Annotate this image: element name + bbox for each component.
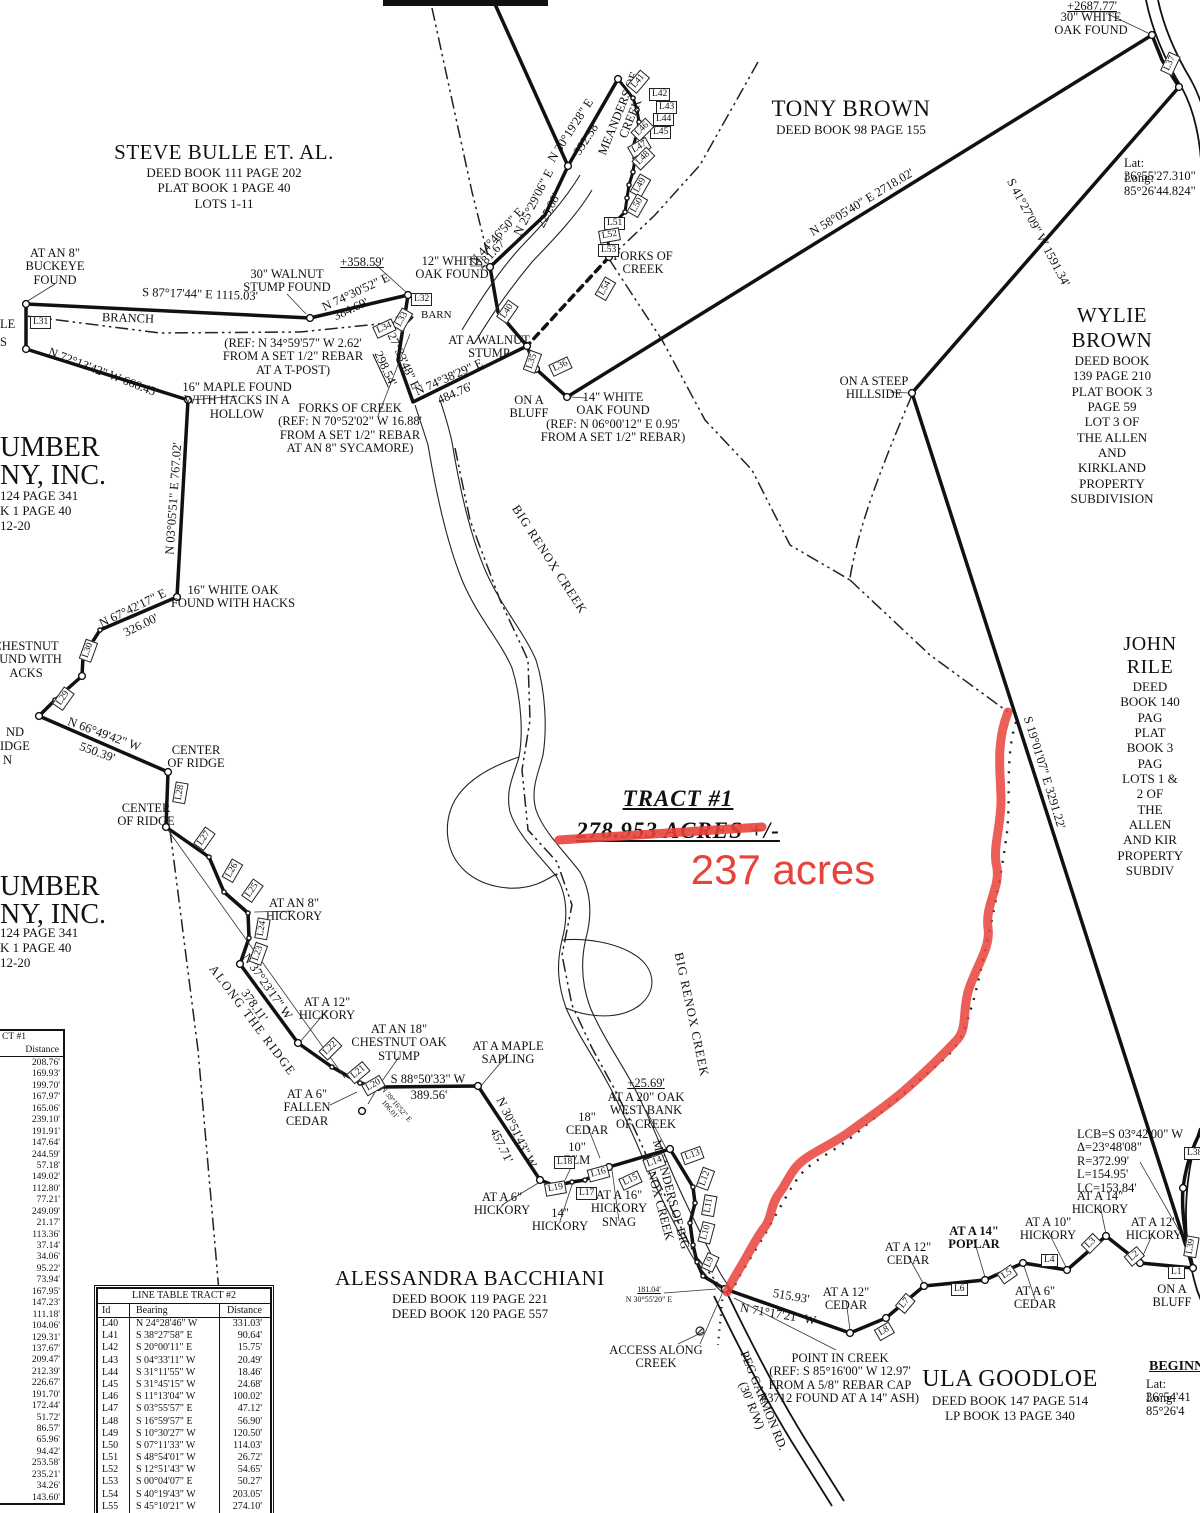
tract1-distance-value: 34.06' — [0, 1251, 63, 1262]
map-label: ON A BLUFF — [1153, 1283, 1192, 1310]
tract2-row-l55: L55S 45°10'21" W274.10' — [98, 1501, 270, 1513]
tract1-distance-value: 165.06' — [0, 1103, 63, 1114]
tract2-distance: 331.03' — [220, 1318, 266, 1330]
map-label: AT AN 18" CHESTNUT OAK STUMP — [351, 1023, 446, 1063]
line-label-l7: L7 — [895, 1293, 916, 1314]
line-label-l27: L27 — [193, 826, 216, 851]
map-label: N 39°16'52" E 106.01' — [373, 1085, 413, 1129]
tract2-header-id: Id — [98, 1304, 130, 1317]
map-label: N — [3, 754, 12, 767]
owner-deed-line: DEED BOOK 139 PAGE 210 — [1068, 353, 1156, 384]
owner-block-steve-bulle-et-al-: STEVE BULLE ET. AL.DEED BOOK 111 PAGE 20… — [114, 140, 334, 211]
survey-point — [537, 1177, 544, 1184]
map-label: AT A 12" CEDAR — [885, 1241, 932, 1268]
line-label-l8: L8 — [874, 1322, 895, 1342]
dotted-tie-line — [718, 1292, 723, 1345]
line-label-l40: L40 — [496, 299, 519, 324]
tract-acres-original: 278.953 ACRES +/- — [576, 818, 780, 844]
line-label-l9: L9 — [701, 1252, 720, 1273]
line-label-l50: L50 — [627, 193, 649, 218]
tract2-bearing: S 48°54'01" W — [130, 1452, 220, 1464]
map-label: AT A 6" HICKORY — [474, 1191, 530, 1218]
owner-deed-line: DEED BOOK 98 PAGE 155 — [772, 122, 931, 137]
line-label-l13: L13 — [680, 1146, 705, 1166]
line-label-l29: L29 — [52, 686, 75, 711]
map-label: FORKS OF CREEK (REF: N 70°52'02" W 16.88… — [278, 402, 422, 456]
line-table-tract1-rows: 208.76'169.93'199.70'167.97'165.06'239.1… — [0, 1057, 63, 1503]
tract1-distance-value: 104.06' — [0, 1320, 63, 1331]
line-label-l1: L1 — [1168, 1266, 1185, 1279]
map-label: AT A 6" CEDAR — [1014, 1285, 1056, 1312]
meander-point — [583, 1178, 587, 1182]
map-label: AT A 10" HICKORY — [1020, 1216, 1076, 1243]
tract1-distance-value: 73.94' — [0, 1274, 63, 1285]
survey-point — [1020, 1260, 1027, 1267]
owner-deed-line: LOT 3 OF — [1068, 414, 1156, 429]
map-label: AT AN 8" HICKORY — [266, 897, 322, 924]
tract1-distance-value: 137.67' — [0, 1343, 63, 1354]
tract2-header-bearing: Bearing — [130, 1304, 220, 1317]
tract2-id: L44 — [98, 1367, 130, 1379]
map-label: ACCESS ALONG CREEK — [609, 1344, 702, 1371]
meander-point — [625, 196, 629, 200]
map-label: 16" WHITE OAK FOUND WITH HACKS — [171, 584, 295, 611]
tract2-id: L53 — [98, 1476, 130, 1488]
tract2-bearing: S 40°19'43" W — [130, 1489, 220, 1501]
meander-point — [247, 936, 251, 940]
owner-deed-line: DEED BOOK 140 PAG — [1117, 679, 1182, 725]
line-label-l10: L10 — [697, 1221, 715, 1245]
tract2-bearing: S 10°30'27" W — [130, 1428, 220, 1440]
survey-point — [909, 390, 916, 397]
map-label: K 1 PAGE 40 — [0, 504, 71, 518]
tract1-distance-value: 226.67' — [0, 1377, 63, 1388]
line-label-l30: L30 — [79, 638, 99, 663]
tract2-row-l47: L47S 03°55'57" E47.12' — [98, 1403, 270, 1415]
tract2-row-l52: L52S 12°51'43" W54.65' — [98, 1464, 270, 1476]
line-label-l17: L17 — [576, 1187, 597, 1200]
owner-block-wylie-brown: WYLIE BROWNDEED BOOK 139 PAGE 210PLAT BO… — [1068, 303, 1156, 506]
line-label-l4: L4 — [1041, 1254, 1058, 1267]
tract2-id: L51 — [98, 1452, 130, 1464]
tract2-id: L47 — [98, 1403, 130, 1415]
line-table-tract2-title: LINE TABLE TRACT #2 — [98, 1289, 270, 1304]
leader-lines — [26, 14, 1180, 1350]
tract2-bearing: S 03°55'57" E — [130, 1403, 220, 1415]
owner-deed-line: DEED BOOK 147 PAGE 514 — [922, 1393, 1097, 1408]
survey-point — [667, 1146, 674, 1153]
tract1-distance-value: 209.47' — [0, 1354, 63, 1365]
map-label: AT A 12" HICKORY — [1126, 1216, 1182, 1243]
map-label: POINT IN CREEK (REF: S 85°16'00" W 12.97… — [761, 1352, 919, 1406]
line-label-l54: L54 — [595, 276, 617, 301]
line-label-l38: L38 — [1184, 1147, 1200, 1160]
owner-deed-line: LOTS 1 & 2 OF — [1117, 771, 1182, 802]
line-label-l6: L6 — [951, 1283, 968, 1296]
tract2-distance: 20.49' — [220, 1355, 266, 1367]
tract1-distance-value: 34.26' — [0, 1480, 63, 1491]
tract1-distance-value: 65.96' — [0, 1434, 63, 1445]
tract1-distance-value: 253.58' — [0, 1457, 63, 1468]
tract1-distance-value: 37.14' — [0, 1240, 63, 1251]
map-label: 389.56' — [411, 1089, 448, 1102]
map-label: ON A STEEP HILLSIDE — [840, 375, 909, 402]
owner-deed-line: LOTS 1-11 — [114, 196, 334, 211]
owner-deed-line: PROPERTY SUBDIVISION — [1068, 476, 1156, 507]
tract2-distance: 90.64' — [220, 1330, 266, 1342]
map-label: AT A 12" HICKORY — [299, 996, 355, 1023]
tract2-bearing: S 31°11'55" W — [130, 1367, 220, 1379]
owner-deed-line: PROPERTY SUBDIV — [1117, 848, 1182, 879]
map-label: 30" WALNUT STUMP FOUND — [243, 268, 330, 295]
survey-point — [1149, 32, 1156, 39]
map-label: ND — [6, 726, 24, 739]
map-label: 18" CEDAR — [566, 1111, 608, 1138]
tract2-id: L54 — [98, 1489, 130, 1501]
survey-point — [1176, 84, 1183, 91]
line-label-l24: L24 — [254, 917, 271, 940]
tract2-distance: 114.03' — [220, 1440, 266, 1452]
tract2-id: L52 — [98, 1464, 130, 1476]
map-label: +358.59' — [340, 256, 384, 269]
tract1-distance-value: 77.21' — [0, 1194, 63, 1205]
survey-point — [565, 163, 572, 170]
tract1-distance-value: 51.72' — [0, 1412, 63, 1423]
tract2-row-l43: L43S 04°33'11" W20.49' — [98, 1355, 270, 1367]
line-label-l25: L25 — [241, 878, 264, 903]
tract2-id: L45 — [98, 1379, 130, 1391]
survey-point — [359, 1108, 366, 1115]
line-label-l44: L44 — [653, 113, 674, 126]
map-label: (REF: N 34°59'57" W 2.62' FROM A SET 1/2… — [223, 337, 363, 377]
tract1-distance-value: 167.95' — [0, 1286, 63, 1297]
survey-point — [847, 1330, 854, 1337]
tract1-distance-value: 239.10' — [0, 1114, 63, 1125]
tract2-bearing: S 11°13'04" W — [130, 1391, 220, 1403]
map-label: 124 PAGE 341 — [0, 489, 78, 503]
tract2-distance: 15.75' — [220, 1342, 266, 1354]
line-table-tract2: LINE TABLE TRACT #2 IdBearingDistance L4… — [96, 1287, 272, 1513]
tract2-row-l40: L40N 24°28'46" W331.03' — [98, 1318, 270, 1330]
owner-name: TONY BROWN — [772, 96, 931, 122]
line-table-tract1: CT #1 Distance 208.76'169.93'199.70'167.… — [0, 1029, 65, 1505]
owner-block-alessandra-bacchiani: ALESSANDRA BACCHIANIDEED BOOK 119 PAGE 2… — [335, 1266, 605, 1322]
map-label: AT A 12" CEDAR — [823, 1286, 870, 1313]
meander-point — [693, 1201, 697, 1205]
survey-point — [921, 1283, 928, 1290]
tract1-distance-value: 129.31' — [0, 1332, 63, 1343]
map-label: AT A 6" FALLEN CEDAR — [284, 1088, 331, 1128]
map-label: NY, INC. — [0, 461, 106, 491]
map-label: S — [0, 336, 7, 349]
tract2-id: L43 — [98, 1355, 130, 1367]
map-label: S 88°50'33" W — [391, 1073, 466, 1086]
meander-point — [701, 1274, 705, 1278]
map-label: +25.69' — [627, 1077, 664, 1090]
map-label: AT A 16" HICKORY SNAG — [591, 1189, 647, 1229]
tract1-distance-value: 57.18' — [0, 1160, 63, 1171]
line-label-l52: L52 — [598, 227, 621, 244]
utility-symbol — [696, 1327, 704, 1335]
tract1-distance-value: 199.70' — [0, 1080, 63, 1091]
meander-point — [222, 890, 226, 894]
line-label-l37: L37 — [1160, 51, 1181, 76]
tract1-distance-value: 169.93' — [0, 1068, 63, 1079]
line-table-tract1-title: CT #1 — [0, 1031, 63, 1043]
tract1-distance-value: 172.44' — [0, 1400, 63, 1411]
tract2-row-l45: L45S 31°45'15" W24.68' — [98, 1379, 270, 1391]
tract1-distance-value: 167.97' — [0, 1091, 63, 1102]
tract2-id: L40 — [98, 1318, 130, 1330]
tract2-id: L42 — [98, 1342, 130, 1354]
map-label: UMBER — [0, 433, 100, 463]
survey-plat-map: TRACT #1 278.953 ACRES +/- 237 acres CT … — [0, 0, 1200, 1513]
tract2-bearing: S 00°04'07" E — [130, 1476, 220, 1488]
map-label: N 72°13'42" W 666.45' — [46, 346, 159, 400]
tract1-distance-value: 249.09' — [0, 1206, 63, 1217]
owner-deed-line: THE ALLEN AND KIR — [1117, 802, 1182, 848]
tract1-distance-value: 112.80' — [0, 1183, 63, 1194]
tract2-row-l51: L51S 48°54'01" W26.72' — [98, 1452, 270, 1464]
map-label: 515.93' — [772, 1287, 810, 1307]
meander-point — [207, 855, 211, 859]
tract2-distance: 203.05' — [220, 1489, 266, 1501]
map-label: AT A 14" POPLAR — [948, 1225, 999, 1252]
red-boundary-highlight — [727, 712, 1008, 1292]
map-label: 16" MAPLE FOUND WITH HACKS IN A HOLLOW — [182, 381, 291, 421]
tract2-distance: 26.72' — [220, 1452, 266, 1464]
map-label: FORKS OF CREEK — [613, 250, 672, 277]
line-label-l22: L22 — [318, 1036, 343, 1061]
owner-deed-line: LP BOOK 13 PAGE 340 — [922, 1408, 1097, 1423]
tract2-distance: 54.65' — [220, 1464, 266, 1476]
map-label: UMBER — [0, 872, 100, 902]
tract-title: TRACT #1 — [623, 786, 734, 812]
line-label-l5: L5 — [997, 1264, 1018, 1284]
meander-point — [631, 170, 635, 174]
map-label: IDGE — [0, 740, 30, 753]
dotted-creek-boundary — [733, 722, 1016, 1290]
survey-point — [307, 315, 314, 322]
map-label: CENTER OF RIDGE — [117, 802, 174, 829]
meander-point — [691, 1185, 695, 1189]
tract2-bearing: S 04°33'11" W — [130, 1355, 220, 1367]
map-label: BARN — [421, 310, 452, 322]
owner-block-ula-goodloe: ULA GOODLOEDEED BOOK 147 PAGE 514LP BOOK… — [922, 1366, 1097, 1424]
tract1-distance-value: 94.42' — [0, 1446, 63, 1457]
line-label-l28: L28 — [172, 781, 189, 804]
line-label-l12: L12 — [696, 1166, 716, 1191]
map-label: S 87°17'44" E 1115.03' — [142, 286, 258, 303]
owner-deed-line: THE ALLEN AND KIRKLAND — [1068, 430, 1156, 476]
map-label: 181.04' — [637, 1286, 660, 1295]
line-label-l39: L39 — [1183, 1235, 1200, 1258]
owner-deed-line: PLAT BOOK 3 PAGE 59 — [1068, 384, 1156, 415]
line-label-l11: L11 — [701, 1194, 718, 1217]
survey-point — [295, 1040, 302, 1047]
tract2-bearing: S 45°10'21" W — [130, 1501, 220, 1513]
tract1-distance-value: 86.57' — [0, 1423, 63, 1434]
tract1-distance-value: 149.02' — [0, 1171, 63, 1182]
tract2-bearing: S 07°11'33" W — [130, 1440, 220, 1452]
owner-block-john-rile: JOHN RILEDEED BOOK 140 PAGPLAT BOOK 3 PA… — [1117, 633, 1182, 878]
owner-deed-line: DEED BOOK 120 PAGE 557 — [335, 1306, 605, 1321]
map-label: 14" WHITE OAK FOUND (REF: N 06°00'12" E … — [541, 391, 686, 445]
survey-point — [23, 346, 30, 353]
line-label-l42: L42 — [649, 88, 670, 101]
tract1-distance-value: 191.70' — [0, 1389, 63, 1400]
tract2-row-l46: L46S 11°13'04" W100.02' — [98, 1391, 270, 1403]
meander-point — [695, 1260, 699, 1264]
tract1-distance-value: 147.64' — [0, 1137, 63, 1148]
tract2-row-l48: L48S 16°59'57" E56.90' — [98, 1416, 270, 1428]
tract2-bearing: S 38°27'58" E — [130, 1330, 220, 1342]
line-label-l3: L3 — [1081, 1233, 1102, 1254]
map-label: 30" WHITE OAK FOUND — [1054, 11, 1127, 38]
tract1-distance-value: 235.21' — [0, 1469, 63, 1480]
map-label: LCB=S 03°42'00" W Δ=23°48'08" R=372.99' … — [1077, 1128, 1183, 1195]
tract2-row-l49: L49S 10°30'27" W120.50' — [98, 1428, 270, 1440]
sheet-cut-bar — [383, 0, 548, 6]
tract2-bearing: S 12°51'43" W — [130, 1464, 220, 1476]
line-table-tract2-header: IdBearingDistance — [98, 1304, 270, 1318]
line-label-l53: L53 — [598, 244, 619, 257]
tract2-distance: 56.90' — [220, 1416, 266, 1428]
map-label: 12-20 — [0, 956, 30, 970]
tract2-distance: 47.12' — [220, 1403, 266, 1415]
tract2-id: L46 — [98, 1391, 130, 1403]
tract2-bearing: S 31°45'15" W — [130, 1379, 220, 1391]
tract2-row-l44: L44S 31°11'55" W18.46' — [98, 1367, 270, 1379]
map-label: N 58°05'40" E 2718.02' — [808, 166, 917, 239]
tract2-distance: 50.27' — [220, 1476, 266, 1488]
meander-point — [246, 911, 250, 915]
survey-point — [1064, 1267, 1071, 1274]
map-label: S 19°01'07" E 3291.22' — [1021, 715, 1068, 831]
map-label: N 03°05'51" E 767.02' — [163, 442, 184, 555]
line-label-l16: L16 — [587, 1164, 611, 1182]
tract1-distance-value: 21.17' — [0, 1217, 63, 1228]
meander-point — [627, 183, 631, 187]
tract2-distance: 18.46' — [220, 1367, 266, 1379]
owner-name: JOHN RILE — [1117, 633, 1182, 679]
tract2-id: L49 — [98, 1428, 130, 1440]
survey-point — [615, 76, 622, 83]
map-label: 281.67' — [475, 236, 510, 272]
meander-point — [330, 1065, 334, 1069]
owner-name: ALESSANDRA BACCHIANI — [335, 1266, 605, 1291]
map-label: 14" HICKORY — [532, 1207, 588, 1234]
tract1-distance-value: 191.91' — [0, 1126, 63, 1137]
tract2-bearing: N 24°28'46" W — [130, 1318, 220, 1330]
tract2-distance: 120.50' — [220, 1428, 266, 1440]
tract2-row-l54: L54S 40°19'43" W203.05' — [98, 1489, 270, 1501]
owner-deed-line: PLAT BOOK 3 PAG — [1117, 725, 1182, 771]
meander-point — [688, 1221, 692, 1225]
map-label: K 1 PAGE 40 — [0, 941, 71, 955]
line-table-tract1-distance-header: Distance — [0, 1043, 63, 1057]
tract2-distance: 274.10' — [220, 1501, 266, 1513]
tract2-distance: 100.02' — [220, 1391, 266, 1403]
buckeye-found-label: AT AN 8" BUCKEYE FOUND — [25, 247, 84, 287]
owner-name: WYLIE BROWN — [1068, 303, 1156, 353]
tract1-distance-value: 111.18' — [0, 1309, 63, 1320]
map-label: Long: 85°26'44.824" — [1124, 172, 1200, 199]
tract2-distance: 24.68' — [220, 1379, 266, 1391]
map-label: BRANCH — [102, 311, 155, 326]
tract2-id: L50 — [98, 1440, 130, 1452]
tract2-row-l41: L41S 38°27'58" E90.64' — [98, 1330, 270, 1342]
tract1-distance-value: 95.22' — [0, 1263, 63, 1274]
line-label-l31: L31 — [30, 316, 51, 329]
map-label: LE — [0, 318, 15, 331]
owner-deed-line: PLAT BOOK 1 PAGE 40 — [114, 180, 334, 195]
map-label: AT A MAPLE SAPLING — [472, 1040, 543, 1067]
tract2-id: L55 — [98, 1501, 130, 1513]
survey-point — [79, 673, 86, 680]
map-label: 12-20 — [0, 519, 30, 533]
owner-deed-line: DEED BOOK 111 PAGE 202 — [114, 165, 334, 180]
map-label: AT A WALNUT STUMP — [448, 334, 530, 361]
survey-point — [475, 1083, 482, 1090]
tract2-bearing: S 16°59'57" E — [130, 1416, 220, 1428]
tract-acres-annotation: 237 acres — [691, 846, 875, 894]
map-label: AT A 20" OAK WEST BANK OF CREEK — [608, 1091, 685, 1131]
owner-name: STEVE BULLE ET. AL. — [114, 140, 334, 165]
tract1-distance-value: 244.59' — [0, 1149, 63, 1160]
line-label-l19: L19 — [544, 1180, 567, 1197]
survey-point — [982, 1277, 989, 1284]
survey-point — [1190, 1265, 1197, 1272]
survey-point — [36, 713, 43, 720]
line-table-tract2-rows: L40N 24°28'46" W331.03'L41S 38°27'58" E9… — [98, 1318, 270, 1513]
map-label: BIG RENOX CREEK — [671, 951, 710, 1078]
line-label-l2: L2 — [1124, 1246, 1145, 1267]
tract1-distance-value: 212.39' — [0, 1366, 63, 1377]
line-label-l23: L23 — [249, 941, 269, 966]
owner-name: ULA GOODLOE — [922, 1366, 1097, 1393]
tract2-id: L41 — [98, 1330, 130, 1342]
map-label: CHESTNUT OUND WITH ACKS — [0, 640, 62, 680]
tract1-distance-value: 208.76' — [0, 1057, 63, 1068]
meander-point — [570, 1180, 574, 1184]
line-label-l36: L36 — [548, 356, 573, 377]
tract1-distance-value: 113.36' — [0, 1229, 63, 1240]
map-label: N 30°55'20" E — [626, 1296, 673, 1305]
tract2-header-distance: Distance — [220, 1304, 266, 1317]
survey-point — [23, 301, 30, 308]
tract2-id: L48 — [98, 1416, 130, 1428]
line-label-l26: L26 — [222, 858, 244, 883]
line-label-l32: L32 — [411, 293, 432, 306]
survey-point — [1103, 1233, 1110, 1240]
map-label: Long: 85°26'4 — [1146, 1392, 1200, 1419]
owner-block-tony-brown: TONY BROWNDEED BOOK 98 PAGE 155 — [772, 96, 931, 137]
map-label: CENTER OF RIDGE — [167, 744, 224, 771]
tract1-distance-value: 143.60' — [0, 1492, 63, 1503]
map-label: BEGINN — [1149, 1360, 1200, 1375]
tract2-row-l50: L50S 07°11'33" W114.03' — [98, 1440, 270, 1452]
tract1-distance-value: 147.23' — [0, 1297, 63, 1308]
tract2-row-l53: L53S 00°04'07" E50.27' — [98, 1476, 270, 1488]
tract2-bearing: S 20°00'11" E — [130, 1342, 220, 1354]
map-label: S 41°27'09" W 1591.34' — [1004, 176, 1072, 289]
owner-deed-line: DEED BOOK 119 PAGE 221 — [335, 1291, 605, 1306]
line-label-l18: L18 — [554, 1156, 575, 1169]
survey-point — [722, 1286, 729, 1293]
tract2-row-l42: L42S 20°00'11" E15.75' — [98, 1342, 270, 1354]
map-label: 124 PAGE 341 — [0, 926, 78, 940]
